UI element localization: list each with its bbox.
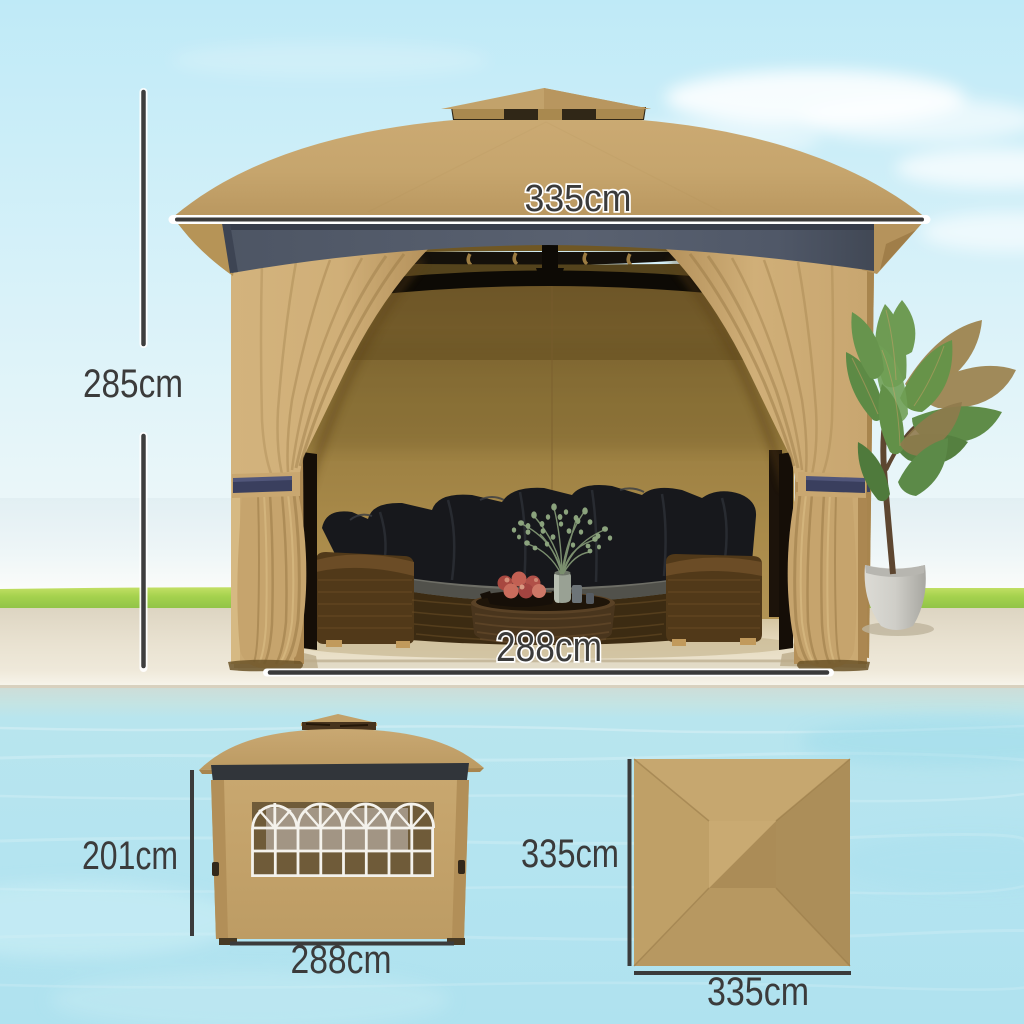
svg-text:288cm: 288cm — [291, 938, 392, 982]
svg-text:285cm: 285cm — [83, 362, 183, 406]
svg-text:335cm: 335cm — [521, 832, 619, 876]
svg-text:335cm: 335cm — [525, 178, 632, 220]
svg-text:201cm: 201cm — [82, 834, 178, 878]
svg-text:288cm: 288cm — [496, 623, 602, 670]
svg-text:335cm: 335cm — [707, 970, 809, 1014]
